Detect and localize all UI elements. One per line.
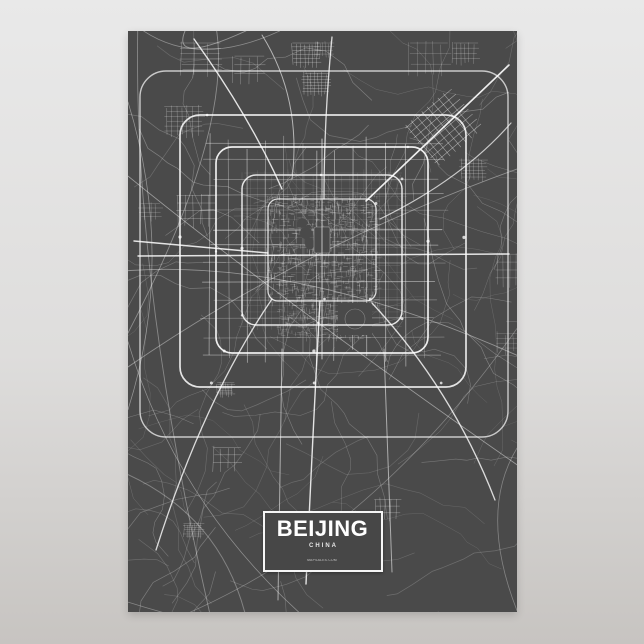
poster-title-plate: BEIJING CHINA MAPSALES.COM xyxy=(263,511,383,572)
poster-subtitle: CHINA xyxy=(307,543,338,550)
poster-watermark: MAPSALES.COM xyxy=(308,559,338,562)
map-poster: BEIJING CHINA MAPSALES.COM xyxy=(128,31,517,612)
poster-title: BEIJING xyxy=(277,518,369,540)
